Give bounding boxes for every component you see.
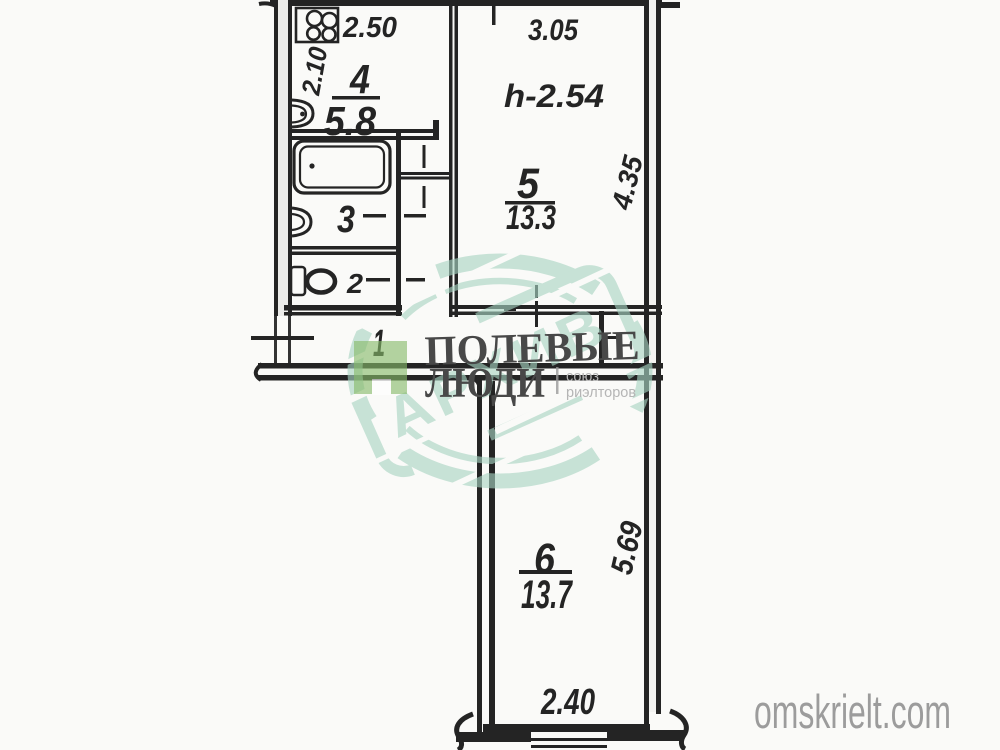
svg-text:риэлторов: риэлторов: [566, 385, 636, 401]
svg-text:3: 3: [337, 199, 355, 241]
svg-text:13.3: 13.3: [506, 199, 556, 237]
svg-text:omskrielt.com: omskrielt.com: [754, 685, 951, 738]
svg-text:5.8: 5.8: [324, 98, 376, 144]
svg-text:13.7: 13.7: [521, 573, 573, 617]
svg-text:3.05: 3.05: [528, 14, 579, 47]
svg-text:2: 2: [346, 268, 363, 299]
svg-text:2.50: 2.50: [342, 12, 397, 44]
svg-text:союз: союз: [566, 369, 599, 385]
svg-text:h-2.54: h-2.54: [504, 78, 604, 114]
svg-text:2.40: 2.40: [540, 681, 595, 722]
svg-text:4: 4: [349, 56, 370, 102]
svg-text:ЛЮДИ: ЛЮДИ: [425, 361, 545, 407]
